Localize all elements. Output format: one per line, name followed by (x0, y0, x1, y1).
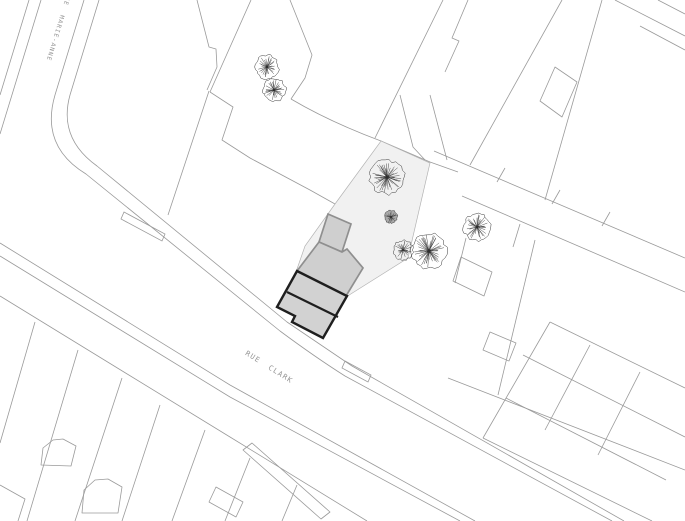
lot-line (400, 95, 425, 160)
lot-line (658, 0, 685, 14)
building-outline (550, 322, 685, 388)
building-outline (210, 92, 335, 204)
building-outline (210, 0, 251, 92)
street-edge-line (0, 243, 475, 521)
lot-line (282, 485, 297, 521)
lot-line (498, 240, 535, 395)
site-plan-canvas: RUE MARIE-ANNE RUE CLARK (0, 0, 685, 521)
building-outline (483, 332, 516, 361)
lot-line (168, 91, 209, 215)
lot-line (640, 26, 685, 50)
lot-line (615, 0, 685, 36)
lot-line (0, 322, 35, 443)
lot-line (172, 430, 205, 521)
building-outline (0, 485, 25, 521)
building-outline (41, 439, 76, 466)
building-outline (445, 0, 468, 72)
building-outline (483, 322, 550, 438)
lot-line (430, 95, 447, 160)
building-step (552, 190, 560, 204)
street-edge-line (0, 0, 29, 95)
lot-line (122, 405, 160, 521)
building-outline (197, 0, 217, 90)
lot-line (225, 458, 250, 521)
tree-icon (410, 233, 447, 269)
lot-line (75, 378, 122, 521)
lot-line (455, 238, 466, 283)
building-outline (453, 257, 492, 296)
building-division (523, 355, 685, 437)
building-outline (540, 67, 577, 117)
lot-line (545, 0, 602, 200)
building-outline (290, 0, 312, 99)
building-division (545, 345, 590, 430)
site-plan: RUE MARIE-ANNE RUE CLARK (0, 0, 685, 521)
lot-line (375, 0, 443, 138)
street-label-rue-clark: RUE CLARK (244, 349, 295, 386)
building-row-line (434, 151, 685, 258)
tree-icon (463, 213, 492, 242)
lot-line (27, 350, 78, 521)
tree-icon (262, 79, 286, 102)
building-outline (82, 479, 122, 513)
street-edge-line (0, 0, 41, 134)
building-division (598, 372, 640, 455)
building-outline (243, 443, 330, 519)
lot-line (513, 224, 520, 247)
building-outline (483, 438, 652, 521)
sidewalk-pad (342, 361, 371, 382)
building-outline (209, 487, 243, 517)
lane-line (448, 378, 685, 470)
tree-icon (255, 55, 280, 80)
